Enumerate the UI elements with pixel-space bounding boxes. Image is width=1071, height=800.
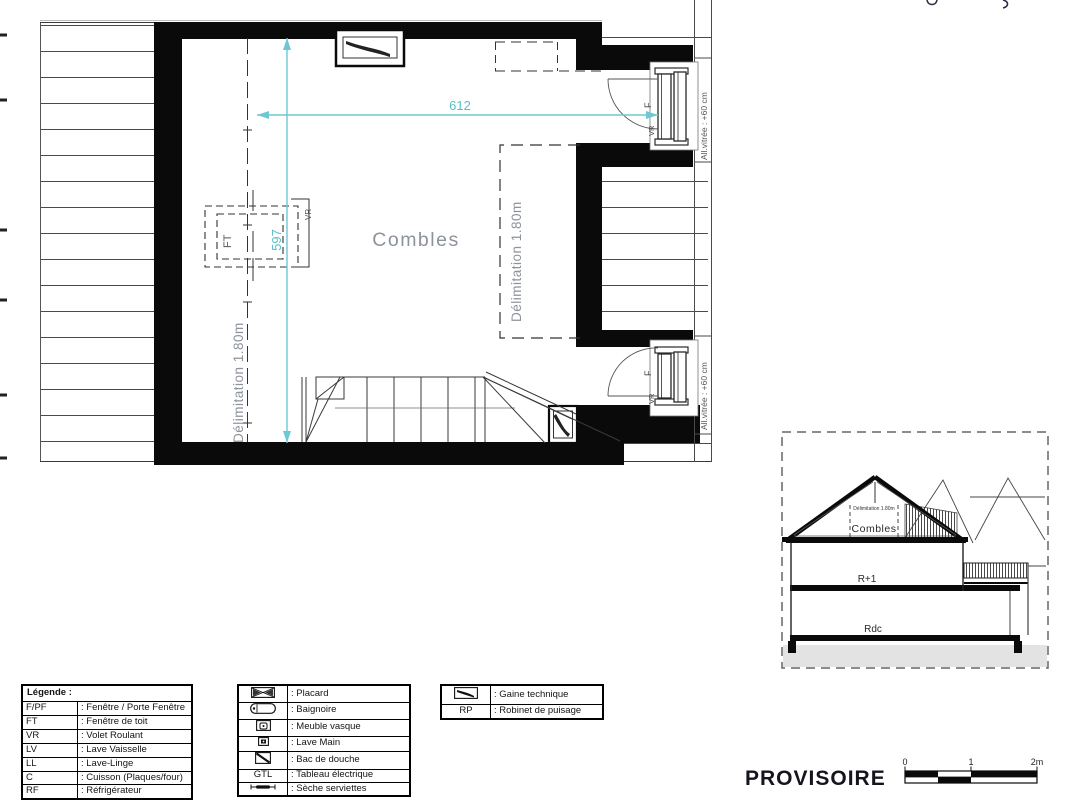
window-top-type-label: F: [643, 102, 653, 108]
legend-desc: : Fenêtre de toit: [78, 715, 192, 729]
legend-desc: : Volet Roulant: [78, 729, 192, 743]
window-top-sill-note: All.vitrée : +60 cm: [699, 92, 709, 160]
legend-desc: : Lave Main: [288, 736, 410, 751]
shower-tray-icon: [255, 752, 271, 764]
hand-basin-icon: [258, 737, 269, 746]
dimension-width: 612: [257, 98, 658, 119]
legend-desc: : Tableau électrique: [288, 769, 410, 782]
background-roofs: [905, 478, 1045, 543]
section-attic-label: Combles: [852, 523, 897, 535]
legend-desc: : Bac de douche: [288, 751, 410, 769]
section-drawing: Délimitation 1.80m Combles R+1 Rdc: [770, 425, 1060, 675]
legend-title: Légende :: [23, 686, 192, 702]
scale-tick-1: 1: [968, 757, 973, 767]
ground-fill: [783, 645, 1047, 667]
technical-duct-top: [336, 30, 404, 66]
window-bottom-type-label: F: [643, 370, 653, 376]
legend-desc: : Baignoire: [288, 702, 410, 719]
section-frame: [782, 432, 1048, 668]
legend-desc: : Sèche serviettes: [288, 782, 410, 796]
floor-plan-drawing: F VR All.vitrée : +60 cm F VR All.vitrée…: [0, 0, 720, 480]
legend-abbr: F/PF: [23, 701, 78, 715]
dimension-height-value: 597: [269, 229, 284, 251]
technical-duct-icon: [454, 687, 478, 699]
legend-desc: : Lave Vaisselle: [78, 743, 192, 757]
legend-abbr-gtl: GTL: [239, 769, 288, 782]
scale-tick-2: 2m: [1031, 757, 1044, 767]
legend-symbols: : Placard : Baignoire :: [237, 684, 411, 797]
legend-desc: : Gaine technique: [491, 686, 603, 705]
legend-desc: : Meuble vasque: [288, 719, 410, 736]
roof-window-shutter-label: VR: [304, 209, 313, 220]
sheet-edge-marks: [0, 35, 7, 458]
dimension-width-value: 612: [449, 98, 471, 113]
placard-icon: [251, 687, 275, 698]
legend-abbr-rp: RP: [442, 704, 491, 718]
clipped-letter-fragment: [1000, 0, 1014, 10]
section-first-floor-label: R+1: [858, 574, 877, 585]
technical-duct-stair: [549, 406, 577, 443]
washbasin-cabinet-icon: [256, 720, 271, 731]
roof-window-type-label: FT: [222, 234, 234, 248]
legend-technical: : Gaine technique RP : Robinet de puisag…: [440, 684, 604, 720]
section-ground-floor-label: Rdc: [864, 624, 882, 635]
clipped-letter-fragment: [925, 0, 941, 9]
window-bottom-shutter-label: VR: [647, 393, 656, 404]
status-watermark: PROVISOIRE: [745, 767, 886, 791]
legend-abbr: FT: [23, 715, 78, 729]
section-delimitation-label: Délimitation 1.80m: [853, 506, 894, 512]
legend-abbr: VR: [23, 729, 78, 743]
window-top-shutter-label: VR: [647, 125, 656, 136]
legend-abbreviations: Légende : F/PF : Fenêtre / Porte Fenêtre…: [21, 684, 193, 800]
legend-desc: : Placard: [288, 686, 410, 703]
window-bottom-sill-note: All.vitrée : +60 cm: [699, 362, 709, 430]
dimension-height: 597: [269, 38, 291, 443]
bathtub-icon: [250, 703, 276, 714]
legend-desc: : Fenêtre / Porte Fenêtre: [78, 701, 192, 715]
delimitation-left-label: Délimitation 1.80m: [231, 322, 246, 443]
room-label: Combles: [372, 229, 459, 251]
scale-bar: 0 1 2m: [897, 754, 1047, 788]
towel-dryer-icon: [250, 783, 276, 791]
legend-abbr: LL: [23, 757, 78, 771]
legend-desc: : Cuisson (Plaques/four): [78, 771, 192, 785]
scale-tick-0: 0: [902, 757, 907, 767]
legend-abbr: LV: [23, 743, 78, 757]
legend-desc: : Réfrigérateur: [78, 785, 192, 799]
roof-hatch-right: [602, 167, 708, 330]
delimitation-right-label: Délimitation 1.80m: [509, 201, 524, 322]
legend-abbr: RF: [23, 785, 78, 799]
architectural-plan-page: F VR All.vitrée : +60 cm F VR All.vitrée…: [0, 0, 1071, 800]
roof-window: [205, 190, 309, 281]
legend-desc: : Robinet de puisage: [491, 704, 603, 718]
legend-desc: : Lave-Linge: [78, 757, 192, 771]
legend-abbr: C: [23, 771, 78, 785]
